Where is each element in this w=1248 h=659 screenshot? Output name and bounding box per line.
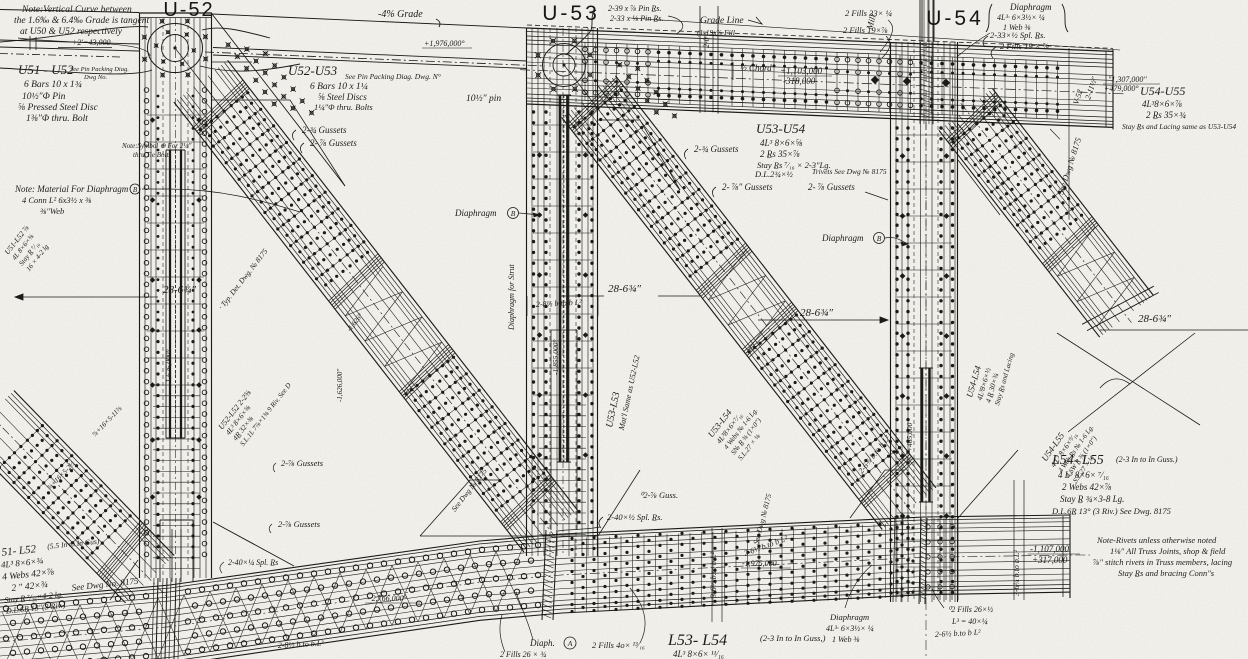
svg-text:2-33×½ Spl. R̲s.: 2-33×½ Spl. R̲s.	[990, 30, 1046, 40]
svg-text:6 Bars 10 x 1¾: 6 Bars 10 x 1¾	[24, 79, 82, 90]
svg-text:1⅛″ All Truss Joints, shop & f: 1⅛″ All Truss Joints, shop & field	[1110, 546, 1226, 556]
svg-text:28-6¾″: 28-6¾″	[800, 307, 833, 319]
svg-text:10½″ pin: 10½″ pin	[466, 93, 501, 104]
svg-text:U-54: U-54	[926, 7, 984, 30]
svg-text:4 L³ 8×6× ⁷⁄₁₆: 4 L³ 8×6× ⁷⁄₁₆	[1058, 470, 1109, 480]
svg-text:4L³8×6×⅞: 4L³8×6×⅞	[1142, 99, 1182, 109]
svg-text:Note:Vertical Curve between: Note:Vertical Curve between	[21, 5, 132, 15]
svg-text:D.L.2¾×½: D.L.2¾×½	[754, 169, 793, 179]
svg-text:(2-3 In to In Guss,): (2-3 In to In Guss,)	[760, 633, 826, 643]
svg-text:2-0: 2-0	[702, 37, 711, 48]
svg-text:⅜″Web: ⅜″Web	[40, 206, 64, 216]
svg-text:3-6½ b.to b.L²: 3-6½ b.to b.L²	[709, 552, 718, 599]
svg-text:+1,103,000: +1,103,000	[780, 66, 823, 76]
svg-text:2-⅞ Gussets: 2-⅞ Gussets	[278, 519, 321, 529]
svg-text:-1,626,000°: -1,626,000°	[164, 350, 173, 386]
svg-text:2-¾ Gussets: 2-¾ Gussets	[302, 125, 347, 135]
svg-text:Dwg No.: Dwg No.	[83, 74, 107, 81]
svg-text:⁰2-⅞ Guss.: ⁰2-⅞ Guss.	[640, 490, 678, 500]
svg-text:L53- L54: L53- L54	[667, 632, 727, 649]
svg-text:B: B	[877, 234, 882, 243]
svg-text:Stay R̲s and bracing Conn″s: Stay R̲s and bracing Conn″s	[1118, 568, 1215, 578]
svg-text:+465,000: +465,000	[905, 422, 914, 452]
svg-text:+317,000: +317,000	[1032, 555, 1068, 565]
svg-text:-1,975,000: -1,975,000	[742, 559, 777, 568]
svg-text:at U50 & U52 respectively: at U50 & U52 respectively	[20, 27, 123, 37]
svg-text:Trivets See Dwg № 8175: Trivets See Dwg № 8175	[812, 167, 887, 176]
svg-text:3-6¼ b.to b.L²: 3-6¼ b.to b.L²	[1012, 550, 1021, 597]
svg-text:6 Bars 10 x 1¼: 6 Bars 10 x 1¼	[310, 81, 368, 92]
svg-text:2-¾ Gussets: 2-¾ Gussets	[694, 144, 739, 154]
svg-text:2 Fills 26 × ¾: 2 Fills 26 × ¾	[500, 650, 546, 659]
svg-text:2 Fills 19×⅞: 2 Fills 19×⅞	[843, 25, 888, 35]
svg-text:4L³· 6×3½× ¼: 4L³· 6×3½× ¼	[826, 624, 874, 633]
svg-text:2 Fills 4o× ¹³⁄₁₆: 2 Fills 4o× ¹³⁄₁₆	[592, 640, 645, 650]
svg-text:U-52: U-52	[163, 0, 214, 21]
svg-text:Diaphragm: Diaphragm	[821, 233, 864, 243]
svg-text:4 Conn L² 6x3½ x ⅜: 4 Conn L² 6x3½ x ⅜	[22, 195, 92, 205]
svg-text:-1,626,000″: -1,626,000″	[336, 369, 344, 402]
svg-text:U51 - U52: U51 - U52	[18, 62, 74, 77]
svg-text:See Pin Packing Diag. Dwg. N°: See Pin Packing Diag. Dwg. N°	[345, 72, 441, 81]
svg-text:the 1.6‰ & 6.4‰ Grade is tange: the 1.6‰ & 6.4‰ Grade is tangent	[14, 16, 149, 26]
svg-text:B: B	[133, 186, 138, 194]
svg-text:Diaphragm for Strut: Diaphragm for Strut	[507, 263, 516, 331]
svg-text:28-6¾″: 28-6¾″	[1138, 313, 1171, 325]
svg-text:(2-3 In to In Guss.): (2-3 In to In Guss.)	[1116, 455, 1178, 464]
svg-text:28-6¾″: 28-6¾″	[608, 283, 641, 295]
svg-text:Note:Symbol ⊕ For 2¼″: Note:Symbol ⊕ For 2¼″	[121, 142, 192, 150]
svg-text:U-53: U-53	[542, 2, 600, 25]
svg-text:½ Chord: ½ Chord	[740, 63, 772, 73]
svg-text:Diaphragm: Diaphragm	[1009, 2, 1052, 12]
svg-text:2-⅞ Gussets: 2-⅞ Gussets	[281, 458, 324, 468]
svg-text:1 Web ⅜: 1 Web ⅜	[832, 635, 859, 644]
svg-text:2- ⅞″ Gussets: 2- ⅞″ Gussets	[722, 182, 773, 192]
svg-text:-4% Grade: -4% Grade	[378, 9, 423, 20]
svg-text:2 Webs 42×⅞: 2 Webs 42×⅞	[1062, 482, 1112, 492]
svg-text:2-33 x ⅛ Pin R̲s.: 2-33 x ⅛ Pin R̲s.	[610, 14, 663, 23]
svg-text:1⅜″Φ thru. Bolt: 1⅜″Φ thru. Bolt	[26, 114, 88, 124]
svg-text:B: B	[511, 209, 516, 218]
svg-text:thru Tie Bolts: thru Tie Bolts	[133, 151, 171, 159]
svg-text:4L³· 6×3½× ¼: 4L³· 6×3½× ¼	[997, 13, 1045, 22]
svg-text:Note: Material For Diaphragm: Note: Material For Diaphragm	[14, 184, 129, 194]
svg-text:"1,307,000": "1,307,000"	[1108, 75, 1147, 84]
svg-text:U52-U53: U52-U53	[288, 63, 338, 78]
svg-text:2-40×¼ Spl. R̲s: 2-40×¼ Spl. R̲s	[228, 558, 278, 567]
svg-text:2 R̲s 35×¾: 2 R̲s 35×¾	[1146, 110, 1186, 120]
svg-text:D.L.6R̲ 13° (3 Riv.) See Dwg.: D.L.6R̲ 13° (3 Riv.) See Dwg. 8175	[1051, 506, 1171, 516]
svg-text:+1,976,000°: +1,976,000°	[424, 39, 465, 48]
svg-text:-318,000: -318,000	[783, 76, 816, 86]
svg-text:2 Fills 33× ¼: 2 Fills 33× ¼	[845, 8, 892, 18]
svg-text:2-39 x ⅞ Pin R̲s.: 2-39 x ⅞ Pin R̲s.	[608, 4, 661, 13]
svg-text:-1,855,000°: -1,855,000°	[551, 340, 560, 376]
svg-text:Diaphragm: Diaphragm	[454, 208, 497, 218]
svg-text:⁰2 Fills 26×½: ⁰2 Fills 26×½	[948, 605, 993, 614]
svg-text:⅝ Pressed Steel Disc: ⅝ Pressed Steel Disc	[18, 103, 99, 113]
svg-text:⅝ Steel Discs: ⅝ Steel Discs	[318, 92, 367, 102]
svg-text:2 Fills 19 × ⅞: 2 Fills 19 × ⅞	[1000, 41, 1049, 51]
svg-text:Stay R̲ ¾×3-8 Lg.: Stay R̲ ¾×3-8 Lg.	[1060, 494, 1124, 504]
svg-text:Stay R̲s and Lacing same as U5: Stay R̲s and Lacing same as U53-U54	[1122, 122, 1236, 131]
svg-text:L54- L55: L54- L55	[1051, 453, 1104, 468]
svg-text:+479,000°: +479,000°	[1104, 84, 1139, 93]
svg-text:U53-U54: U53-U54	[756, 121, 806, 136]
svg-text:Grade Line: Grade Line	[700, 16, 744, 26]
svg-text:2 R̲s 35×⅞: 2 R̲s 35×⅞	[760, 149, 800, 159]
svg-text:2- ⅞ Gussets: 2- ⅞ Gussets	[808, 182, 855, 192]
svg-text:2-40×½ Spl. R̲s.: 2-40×½ Spl. R̲s.	[607, 512, 663, 522]
svg-text:- 2,766,000°: - 2,766,000°	[367, 594, 408, 603]
svg-text:4L³ 8×6×⅝: 4L³ 8×6×⅝	[760, 138, 803, 148]
svg-text:Diaphragm: Diaphragm	[829, 612, 869, 622]
svg-text:L³ = 40×¼: L³ = 40×¼	[951, 617, 988, 626]
svg-text:A: A	[567, 639, 573, 648]
svg-text:Note-Rivets unless otherwise n: Note-Rivets unless otherwise noted	[1096, 535, 1217, 545]
svg-text:10½″Φ Pin: 10½″Φ Pin	[22, 91, 66, 102]
svg-text:4L³ 8×6× ¹¹⁄₁₆: 4L³ 8×6× ¹¹⁄₁₆	[673, 649, 724, 659]
svg-text:2- ⅞ Gussets: 2- ⅞ Gussets	[310, 138, 357, 148]
svg-text:U54-U55: U54-U55	[1140, 84, 1185, 98]
svg-text:28-6¾″: 28-6¾″	[163, 284, 196, 296]
svg-text:⅞″ stitch rivets in Truss memb: ⅞″ stitch rivets in Truss members, lacin…	[1093, 557, 1232, 567]
svg-text:-1,107,000: -1,107,000	[1030, 544, 1069, 554]
svg-text:(1-19x⅞ Fill: (1-19x⅞ Fill	[697, 28, 735, 37]
svg-text:See Pin Packing Diag.: See Pin Packing Diag.	[70, 66, 129, 73]
svg-text:1¼″Φ thru. Bolts: 1¼″Φ thru. Bolts	[314, 102, 373, 112]
